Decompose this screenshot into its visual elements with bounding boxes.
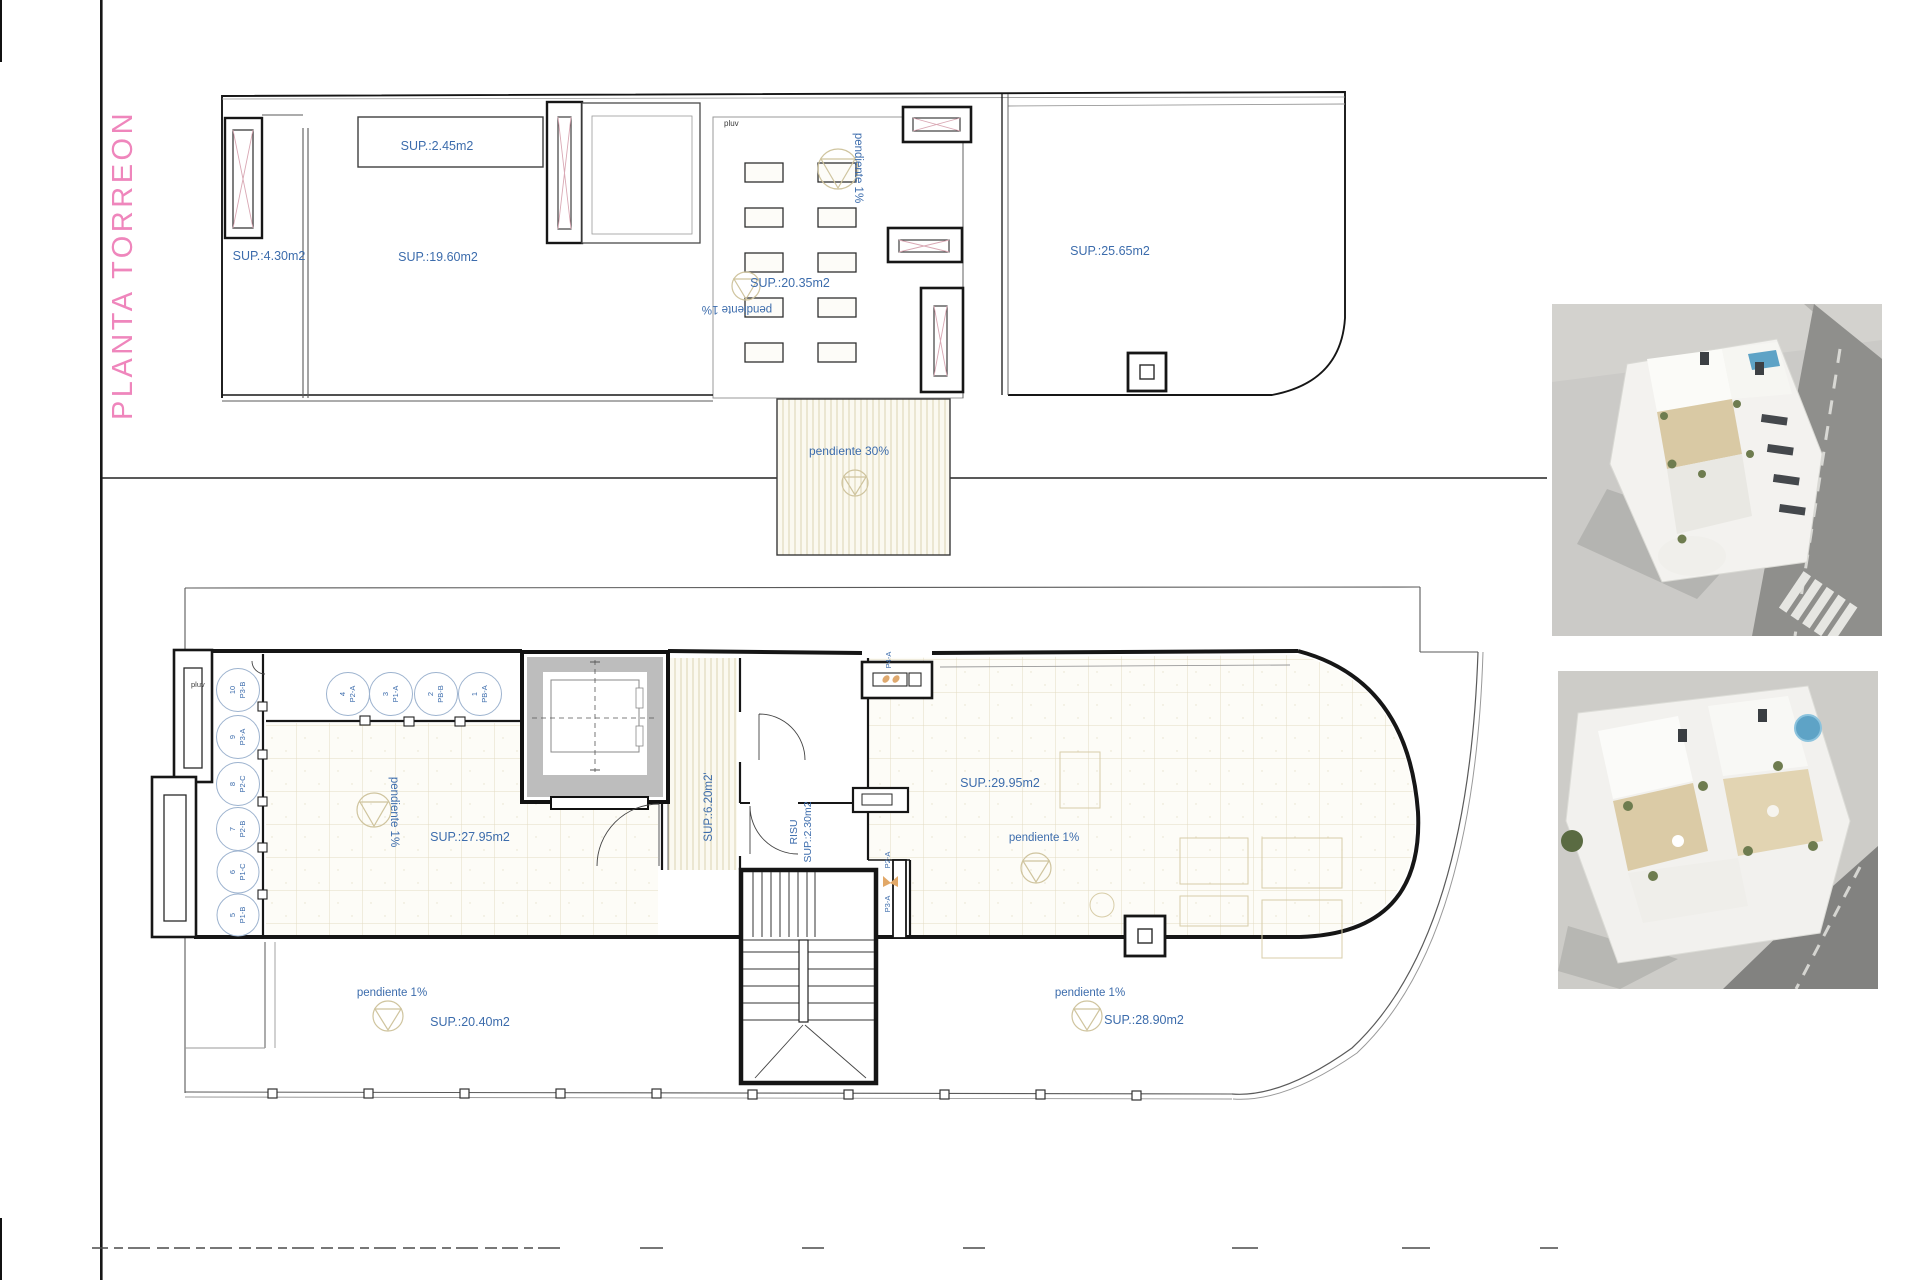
chimney-square-bottom [1125, 916, 1165, 956]
label-pluv-top: pluv [724, 119, 739, 128]
duct-shaft [893, 860, 906, 938]
label-sup-620: SUP.:6.20m2' [703, 772, 715, 841]
label-sup-2995: SUP.:29.95m2 [960, 776, 1040, 790]
svg-text:6: 6 [228, 870, 237, 874]
label-sup-2890: SUP.:28.90m2 [1104, 1013, 1184, 1027]
label-pluv-bottom: pluv [191, 680, 205, 689]
label-pend-terr-right: pendiente 1% [1055, 987, 1125, 999]
chimney-box-vert [921, 288, 963, 392]
chimney-square-right [1128, 353, 1166, 391]
svg-text:P1-C: P1-C [238, 863, 247, 881]
svg-text:1: 1 [470, 692, 479, 696]
svg-text:P3-A: P3-A [238, 729, 247, 746]
svg-text:P2-C: P2-C [238, 775, 247, 793]
riser-circles-top: 4 P2-A 3 P1-A 2 PB-B 1 PB-A [327, 673, 502, 716]
svg-text:P1-A: P1-A [391, 686, 400, 703]
right-room-floor [868, 655, 1415, 935]
label-pend-right: pendiente 1% [1009, 832, 1079, 844]
label-duct-p2a: P2-A [883, 852, 892, 869]
label-sup-245: SUP.:2.45m2 [401, 139, 474, 153]
svg-text:5: 5 [228, 913, 237, 917]
jacuzzi [1795, 715, 1821, 741]
label-sup-2565: SUP.:25.65m2 [1070, 244, 1150, 258]
label-pendiente-vert: pendiente 1% [852, 133, 864, 203]
skylight-grid [745, 163, 856, 362]
svg-text:2: 2 [426, 692, 435, 696]
svg-text:P3-B: P3-B [238, 682, 247, 699]
vent-box-pluv [174, 650, 212, 782]
svg-text:9: 9 [228, 735, 237, 739]
chimney-box-mid [888, 228, 962, 262]
sheet-corner-tick-top [0, 0, 2, 62]
svg-text:3: 3 [381, 692, 390, 696]
label-pendiente-flip: pendiente 1% [702, 303, 772, 315]
vent-box-left [225, 118, 262, 238]
page-title: PLANTA TORREON [107, 110, 139, 420]
label-pend-left: pendiente 1% [388, 777, 400, 847]
staircase [741, 870, 876, 1083]
label-risu: RISU [788, 819, 800, 844]
top-floor-plan: SUP.:2.45m2 SUP.:4.30m2 SUP.:19.60m2 SUP… [222, 92, 1345, 555]
svg-text:7: 7 [228, 827, 237, 831]
building-render-aerial-far [1552, 304, 1882, 636]
label-pend-terr-left: pendiente 1% [357, 987, 427, 999]
label-risu-sup: SUP.:2.30m2 [802, 801, 814, 862]
building-render-aerial-close [1558, 671, 1878, 989]
bottom-floor-plan: 10 P3-B 9 P3-A 8 P2-C 7 P2-B 6 P1-C 5 P1… [152, 587, 1483, 1100]
svg-text:8: 8 [228, 782, 237, 786]
label-sup-2035: SUP.:20.35m2 [750, 276, 830, 290]
svg-text:PB-A: PB-A [480, 685, 489, 703]
sheet-border [100, 0, 103, 1280]
chimney-tall [547, 102, 582, 243]
plan-canvas: PLANTA TORREON [0, 0, 1920, 1280]
chimney-box-top [903, 107, 971, 142]
label-duct-p3a: P3-A [883, 896, 892, 913]
label-sup-430: SUP.:4.30m2 [233, 249, 306, 263]
label-sup-2795: SUP.:27.95m2 [430, 830, 510, 844]
riser-circles-left: 10 P3-B 9 P3-A 8 P2-C 7 P2-B 6 P1-C 5 P1… [217, 669, 260, 937]
svg-text:P2-A: P2-A [348, 686, 357, 703]
drawing-sheet: { "page": { "title": "PLANTA TORREON", "… [0, 0, 1920, 1280]
vent-box-lower [152, 777, 196, 937]
label-duct-top: P4-A [884, 652, 893, 669]
sheet-corner-tick-bottom [0, 1218, 2, 1280]
svg-text:P1-B: P1-B [238, 907, 247, 924]
svg-text:P2-B: P2-B [238, 821, 247, 838]
chimney-service [853, 788, 908, 812]
svg-text:PB-B: PB-B [436, 685, 445, 703]
label-sup-2040: SUP.:20.40m2 [430, 1015, 510, 1029]
label-pendiente-30: pendiente 30% [809, 444, 889, 458]
chimney-top-wall [862, 662, 932, 698]
svg-text:4: 4 [338, 692, 347, 696]
elevator [522, 652, 668, 809]
label-sup-1960: SUP.:19.60m2 [398, 250, 478, 264]
svg-text:10: 10 [228, 686, 237, 694]
elevator-overrun [582, 103, 700, 243]
